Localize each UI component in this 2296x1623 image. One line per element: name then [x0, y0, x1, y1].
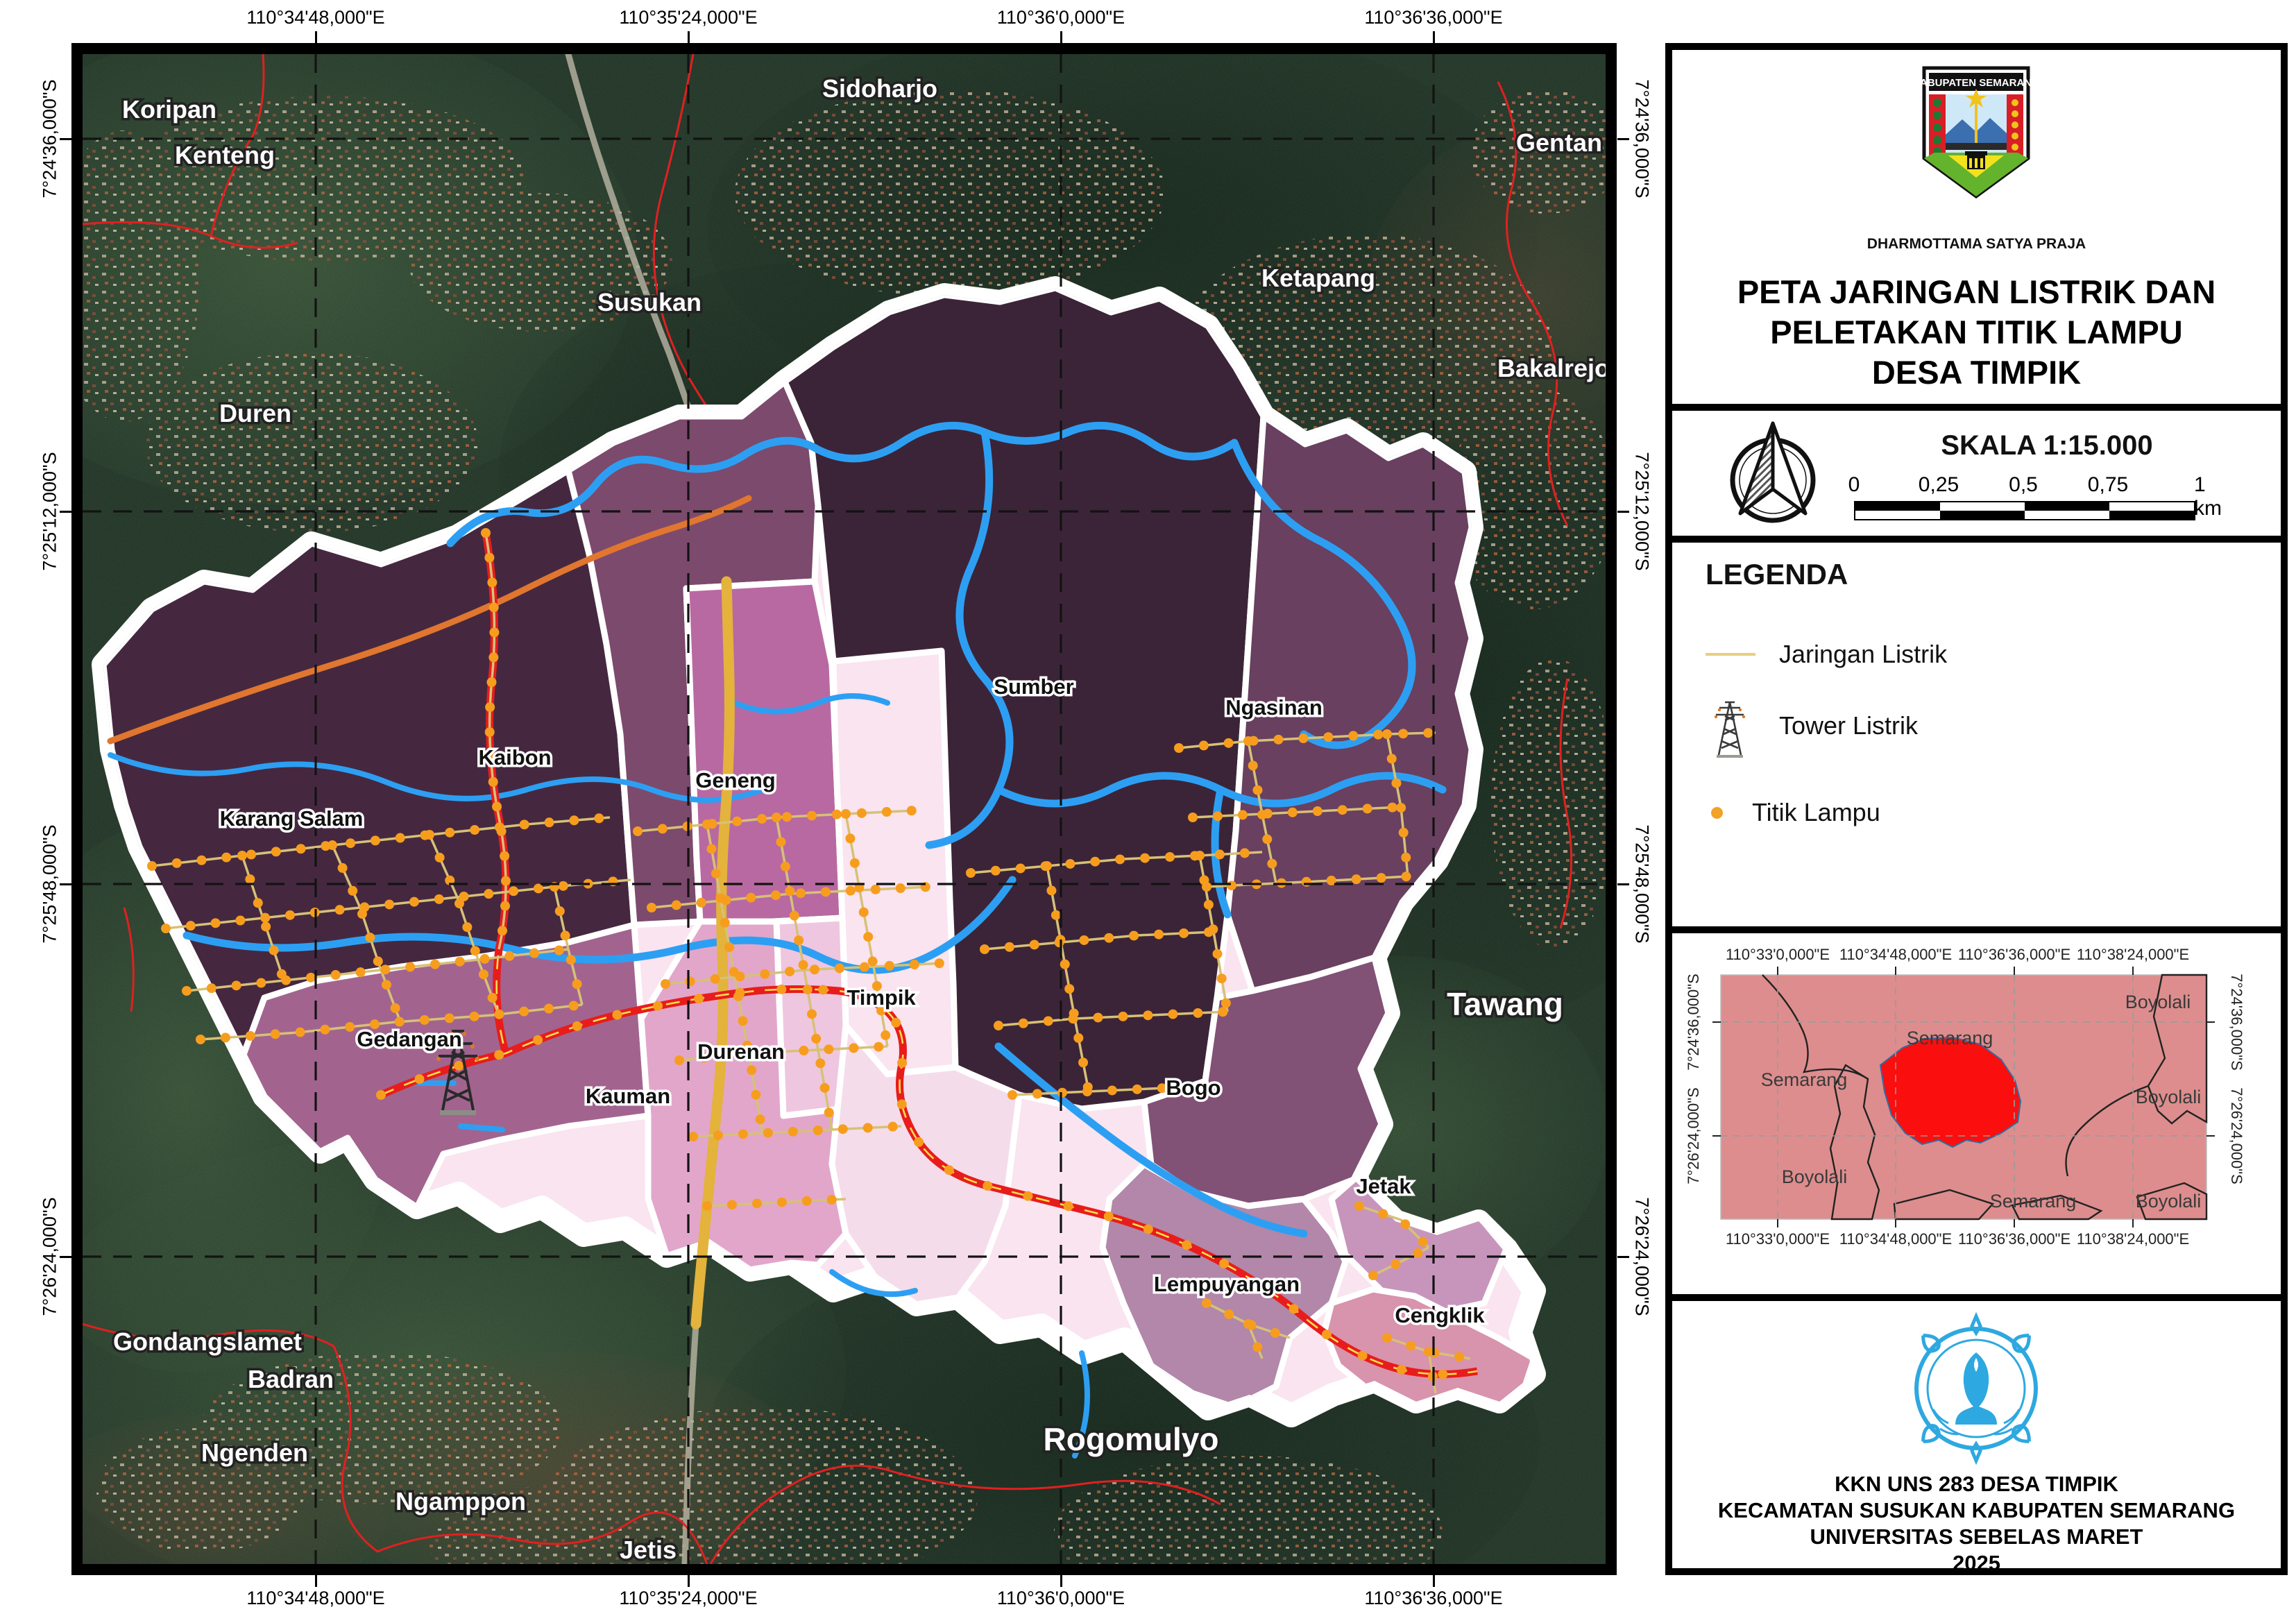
scalebar-tick: 0,25	[1919, 473, 1959, 497]
lat-label-right: 7°24'36,000"S	[1631, 79, 1653, 198]
legend-label: Jaringan Listrik	[1779, 640, 1947, 669]
crest-motto: DHARMOTTAMA SATYA PRAJA	[1672, 236, 2281, 253]
lon-label-bottom: 110°36'0,000"E	[997, 1588, 1125, 1609]
inset-lon-label: 110°33'0,000"E	[1726, 1230, 1830, 1248]
lat-label-right: 7°26'24,000"S	[1631, 1197, 1653, 1316]
lat-label-left: 7°24'36,000"S	[40, 79, 61, 198]
lat-label-right: 7°25'12,000"S	[1631, 452, 1653, 570]
context-label: Susukan	[597, 288, 701, 316]
inset-lat-label: 7°26'24,000"S	[1685, 1087, 1702, 1184]
map-title-line3: DESA TIMPIK	[1672, 352, 2281, 393]
uns-logo-icon	[1672, 1311, 2281, 1470]
context-label: Sidoharjo	[822, 74, 937, 103]
inset-lon-label: 110°38'24,000"E	[2077, 1230, 2189, 1248]
inset-label: Boyolali	[2136, 1191, 2202, 1212]
map-title-line1: PETA JARINGAN LISTRIK DAN	[1672, 272, 2281, 312]
inset-lon-label: 110°38'24,000"E	[2077, 946, 2189, 963]
legend-item-titik-lampu: Titik Lampu	[1706, 798, 1880, 827]
context-label: Rogomulyo	[1044, 1421, 1219, 1457]
inset-map: Semarang Semarang Boyolali Boyolali Boyo…	[1672, 933, 2281, 1294]
legend-box: LEGENDA Jaringan Listrik Tower Listrik	[1665, 536, 2288, 933]
village-label: Ngasinan	[1225, 695, 1323, 720]
inset-lon-label: 110°33'0,000"E	[1726, 946, 1830, 963]
legend-label: Tower Listrik	[1779, 711, 1918, 740]
legend-item-jaringan-listrik: Jaringan Listrik	[1706, 640, 1947, 669]
inset-label: Semarang	[1761, 1069, 1848, 1090]
inset-lon-label: 110°36'36,000"E	[1958, 1230, 2070, 1248]
village-label: Kauman	[586, 1084, 670, 1108]
credits-text: KKN UNS 283 DESA TIMPIK KECAMATAN SUSUKA…	[1672, 1471, 2281, 1577]
village-label: Geneng	[695, 768, 775, 792]
context-label: Badran	[248, 1365, 334, 1393]
village-label: Sumber	[994, 674, 1073, 699]
jaringan-listrik-line-icon	[1706, 653, 1755, 656]
credits-line1: KKN UNS 283 DESA TIMPIK	[1672, 1471, 2281, 1497]
village-label: Kaibon	[478, 745, 551, 770]
village-label: Timpik	[847, 985, 916, 1010]
lat-label-left: 7°25'48,000"S	[40, 824, 61, 943]
lon-label-bottom: 110°34'48,000"E	[246, 1588, 384, 1609]
context-label: Bakalrejo	[1497, 354, 1606, 382]
context-label: Tawang	[1447, 986, 1563, 1022]
context-label: Jetis	[620, 1536, 677, 1564]
inset-lon-label: 110°34'48,000"E	[1839, 946, 1952, 963]
legend-item-tower-listrik: Tower Listrik	[1706, 694, 1918, 758]
scale-box: SKALA 1:15.000 0 0,25 0,5 0,75 1 km	[1665, 404, 2288, 543]
map-canvas: Koripan Kenteng Sidoharjo Gentan Duren S…	[83, 54, 1606, 1564]
title-box: KABUPATEN SEMARANG DHARMOTTAMA SATYA PRA…	[1665, 43, 2288, 411]
titik-lampu-dot-icon	[1711, 807, 1723, 819]
village-label: Lempuyangan	[1154, 1272, 1300, 1296]
region-geneng	[686, 581, 842, 921]
village-label: Karang Salam	[220, 806, 364, 831]
inset-label: Boyolali	[1782, 1166, 1848, 1187]
main-map: Koripan Kenteng Sidoharjo Gentan Duren S…	[71, 43, 1617, 1575]
crest-name: KABUPATEN SEMARANG	[1912, 77, 2040, 89]
lon-label-bottom: 110°35'24,000"E	[619, 1588, 757, 1609]
scalebar-tick: 1 km	[2194, 473, 2222, 520]
lat-label-left: 7°26'24,000"S	[40, 1197, 61, 1316]
inset-lon-label: 110°34'48,000"E	[1839, 1230, 1952, 1248]
lat-label-right: 7°25'48,000"S	[1631, 824, 1653, 943]
scalebar-tick: 0,5	[2009, 473, 2038, 497]
context-label: Ngenden	[201, 1438, 308, 1467]
context-label: Gondangslamet	[113, 1327, 302, 1356]
north-arrow-icon	[1714, 416, 1832, 534]
credits-line3: UNIVERSITAS SEBELAS MARET	[1672, 1524, 2281, 1550]
credits-box: KKN UNS 283 DESA TIMPIK KECAMATAN SUSUKA…	[1665, 1294, 2288, 1575]
lon-label-top: 110°35'24,000"E	[619, 7, 757, 28]
legend-heading: LEGENDA	[1706, 558, 1848, 591]
inset-lat-label: 7°24'36,000"S	[2228, 974, 2245, 1070]
village-label: Gedangan	[357, 1027, 462, 1051]
context-label: Ngamppon	[396, 1487, 526, 1515]
lon-label-top: 110°36'36,000"E	[1364, 7, 1502, 28]
village-label: Cengklik	[1395, 1303, 1485, 1327]
kabupaten-semarang-crest-icon: KABUPATEN SEMARANG	[1672, 62, 2281, 246]
inset-box: Semarang Semarang Boyolali Boyolali Boyo…	[1665, 926, 2288, 1301]
lon-label-top: 110°34'48,000"E	[246, 7, 384, 28]
inset-label: Semarang	[1907, 1028, 1993, 1048]
village-label: Bogo	[1166, 1076, 1221, 1100]
map-title: PETA JARINGAN LISTRIK DAN PELETAKAN TITI…	[1672, 272, 2281, 393]
inset-lat-label: 7°24'36,000"S	[1685, 974, 1702, 1070]
context-label: Kenteng	[175, 141, 275, 169]
map-title-line2: PELETAKAN TITIK LAMPU	[1672, 312, 2281, 352]
lon-label-top: 110°36'0,000"E	[997, 7, 1125, 28]
scalebar	[1854, 501, 2195, 520]
inset-lat-label: 7°26'24,000"S	[2228, 1087, 2245, 1184]
scalebar-tick: 0	[1848, 473, 1860, 497]
context-label: Ketapang	[1261, 264, 1375, 292]
credits-line2: KECAMATAN SUSUKAN KABUPATEN SEMARANG	[1672, 1497, 2281, 1524]
inset-label: Boyolali	[2136, 1087, 2202, 1107]
lat-label-left: 7°25'12,000"S	[40, 452, 61, 570]
side-panel: KABUPATEN SEMARANG DHARMOTTAMA SATYA PRA…	[1665, 43, 2288, 1575]
inset-label: Semarang	[1990, 1191, 2077, 1212]
context-label: Duren	[219, 399, 291, 427]
credits-line4: 2025	[1672, 1550, 2281, 1577]
page: { "colors": { "river": "#2d9ff3", "road_…	[0, 0, 2296, 1623]
tower-listrik-legend-icon	[1706, 694, 1754, 758]
scalebar-tick: 0,75	[2088, 473, 2128, 497]
scale-heading: SKALA 1:15.000	[1832, 430, 2262, 461]
scalebar-ticks: 0 0,25 0,5 0,75 1 km	[1846, 473, 2234, 497]
legend-label: Titik Lampu	[1752, 798, 1880, 827]
village-label: Jetak	[1356, 1174, 1411, 1198]
lon-label-bottom: 110°36'36,000"E	[1364, 1588, 1502, 1609]
village-label: Durenan	[697, 1039, 785, 1064]
inset-label: Boyolali	[2125, 992, 2191, 1012]
context-label: Gentan	[1516, 128, 1602, 157]
context-label: Koripan	[122, 95, 216, 124]
inset-lon-label: 110°36'36,000"E	[1958, 946, 2070, 963]
